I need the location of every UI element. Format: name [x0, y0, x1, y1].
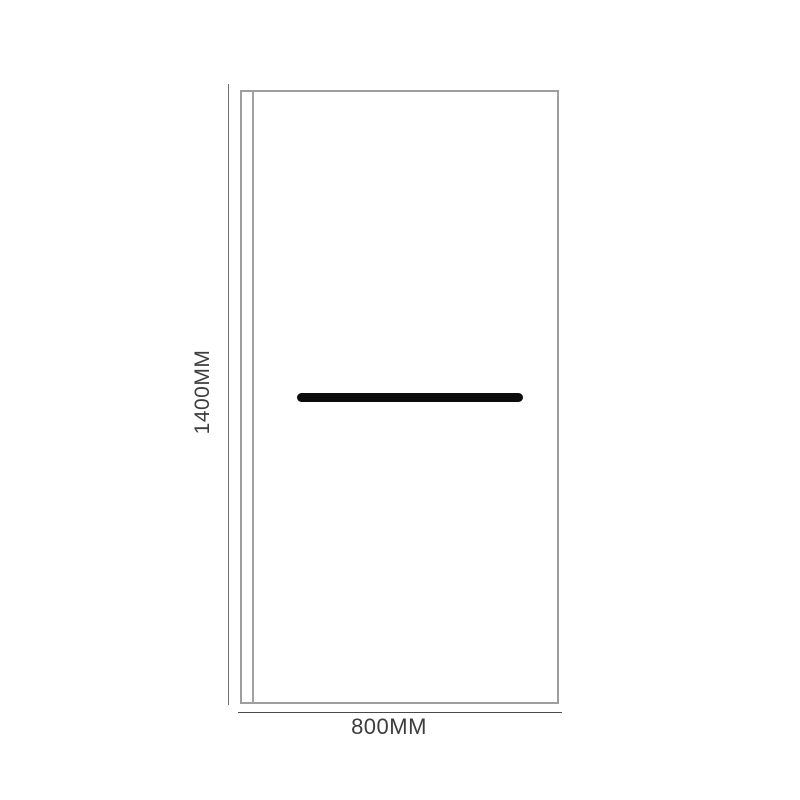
height-dimension-label: 1400MM	[191, 350, 215, 435]
towel-bar	[297, 393, 523, 402]
wall-profile-line	[252, 91, 254, 703]
height-dimension-line	[228, 84, 229, 705]
bath-screen-dimension-diagram: 1400MM 800MM	[0, 0, 800, 800]
width-dimension-label: 800MM	[351, 714, 427, 740]
